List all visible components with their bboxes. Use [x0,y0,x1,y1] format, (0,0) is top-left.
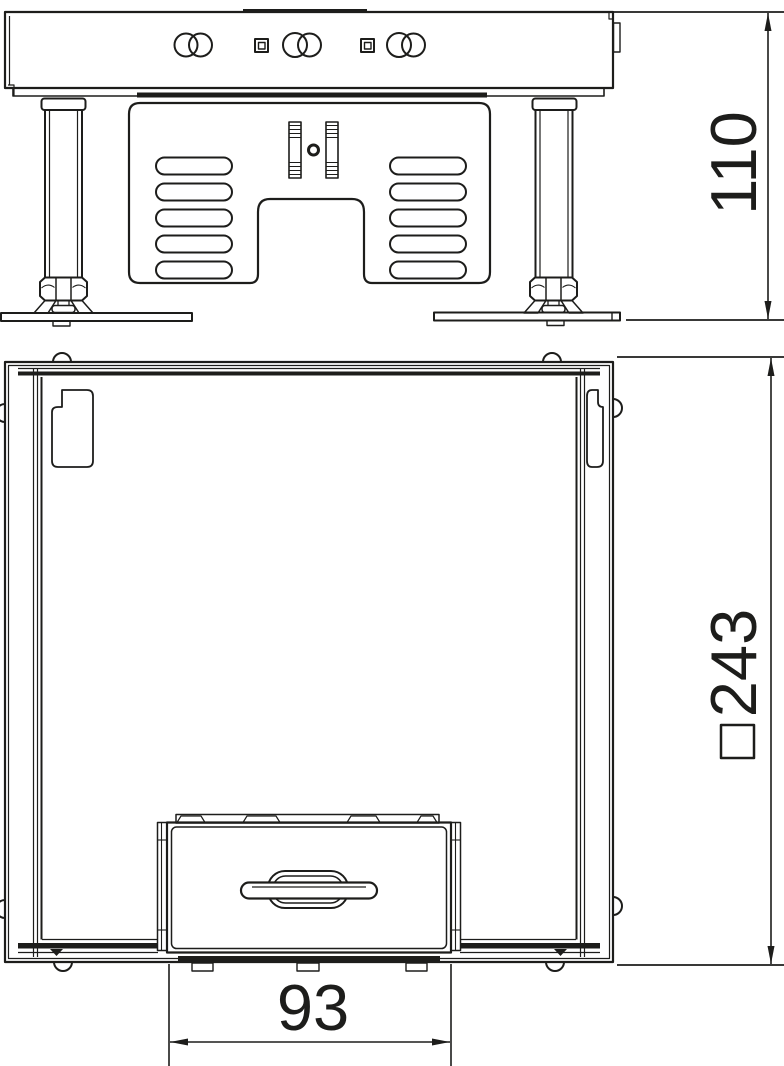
screw-bump-right-lower [613,897,622,915]
threaded-bar [326,122,338,178]
handle-bar [241,883,377,899]
arrowhead-up [765,13,772,31]
dimension-243: 243 [617,357,784,965]
corner-clip-right [587,390,603,467]
vent-slots-right [390,158,466,279]
frame-bottom-band [18,943,158,949]
front-view [1,11,620,326]
foot-plate [1,313,192,321]
lid-bottom-band [178,956,440,961]
leveling-leg-right [434,99,620,326]
dim-243-label: 243 [697,609,770,717]
blind-lid-unit [158,815,461,972]
arrowhead-left [170,1039,188,1046]
foot-plate-end [612,313,620,321]
drawing-canvas: 110 243 93 [0,0,784,1066]
square-knockout [255,39,268,52]
lid-bottom-tab [406,963,427,971]
device-body [5,11,620,96]
plan-view [0,353,622,971]
arrowhead-up [768,358,775,376]
foot-washer [524,301,583,314]
plate-outline [129,103,490,283]
dim-93-label: 93 [277,971,349,1044]
foot-washer [34,301,93,314]
lid-rail-right [451,823,461,951]
knockout-circle-pair [175,34,213,57]
lid-handle [241,871,377,908]
arrowhead-right [432,1039,450,1046]
hex-nut [40,278,87,301]
center-hole [309,145,319,155]
screw-bump-top-left [53,353,71,362]
frame-bottom-band [460,943,600,949]
lid-bottom-tab [297,963,319,971]
arrowhead-down [765,301,772,319]
leg-collar [42,99,86,111]
dimension-110: 110 [613,12,784,320]
side-latch-tab [614,23,621,52]
knockout-circle-pair [283,33,321,57]
square-dimension-symbol [721,725,754,758]
corner-clip-left [52,390,93,467]
technical-drawing-sheet: 110 243 93 [0,0,784,1066]
arrowhead-down [768,946,775,964]
threaded-bar [289,122,301,178]
lid-rail-left [158,823,168,951]
dimension-93: 93 [169,964,451,1066]
vent-slots-left [156,158,232,279]
hex-nut [530,278,577,301]
frame-inner-edge [9,366,610,959]
leveling-leg-left [1,99,192,327]
screw-bump-top-right [543,353,561,362]
dim-110-label: 110 [697,111,770,215]
screw-bump-bottom-left [54,962,72,971]
square-knockout [361,39,374,52]
screw-bump-right-upper [613,399,622,417]
screw-bump-bottom-right [546,962,564,971]
knockout-circle-pair [387,33,425,57]
mounting-plate [129,103,490,283]
cassette-frame [0,353,622,971]
leg-collar [533,99,577,111]
lid-bottom-tab [192,963,213,971]
